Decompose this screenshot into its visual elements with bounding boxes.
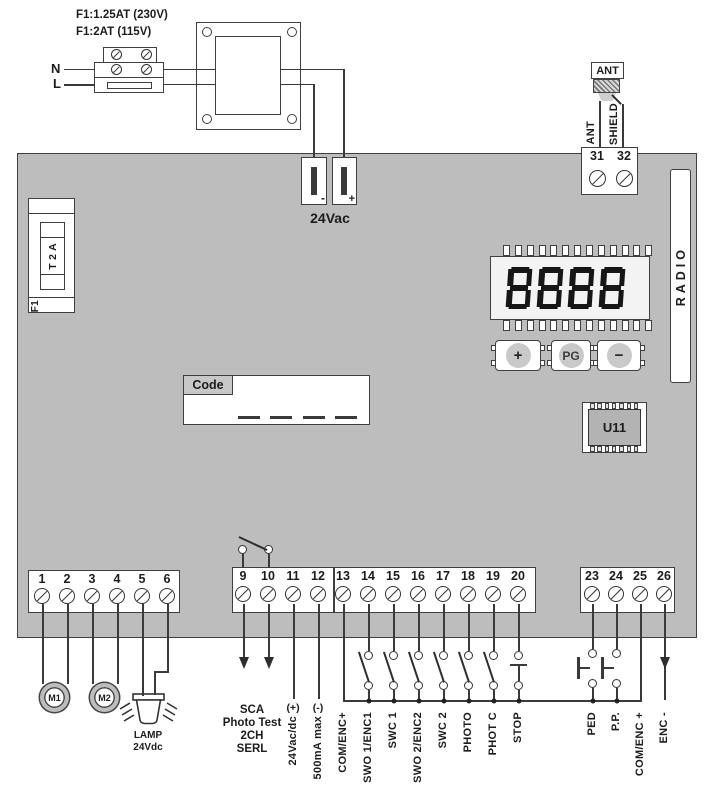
seven-segment-display	[490, 256, 650, 320]
terminal-number-19: 19	[486, 569, 500, 583]
mains-terminal-n	[94, 62, 164, 78]
wire	[142, 604, 144, 696]
button-contact	[612, 679, 621, 688]
button-contact	[588, 679, 597, 688]
fuse-id-label: F1	[29, 300, 43, 312]
relay-contact	[238, 545, 247, 554]
terminal-number-6: 6	[164, 572, 171, 586]
mains-screw	[141, 49, 152, 60]
wire	[640, 604, 642, 702]
wire	[493, 604, 495, 651]
junction-dot	[491, 699, 496, 704]
transformer-core	[215, 36, 281, 115]
terminal-screw-32	[616, 170, 633, 187]
display-pin	[622, 320, 629, 331]
display-pin	[574, 320, 581, 331]
display-pin	[610, 245, 617, 256]
wire	[163, 69, 216, 71]
fuse-rating-label: T 2 A	[46, 243, 60, 270]
wiring-diagram: F1:1.25AT (230V) F1:2AT (115V) N L - + 2…	[0, 0, 719, 800]
segment	[619, 269, 626, 286]
chip-pin	[590, 446, 595, 452]
wire	[67, 604, 69, 684]
mains-screw	[111, 64, 122, 75]
terminal-screw-31	[589, 170, 606, 187]
terminal-screw-18	[460, 586, 476, 602]
neutral-label: N	[51, 61, 60, 76]
switch-contact	[439, 651, 448, 660]
terminal-number-20: 20	[511, 569, 525, 583]
display-pin	[574, 245, 581, 256]
aux-plus-label: (+)	[281, 702, 305, 714]
sca-output-label: SCA Photo Test 2CH SERL	[212, 704, 292, 756]
segment	[526, 269, 533, 286]
chip-pin	[612, 446, 617, 452]
wire	[604, 667, 615, 670]
terminal-screw-2	[59, 588, 75, 604]
terminal-number-9: 9	[240, 569, 247, 583]
transformer-mount-hole	[202, 114, 212, 124]
display-pin	[645, 320, 652, 331]
24vac-blade-minus	[311, 167, 317, 195]
terminal-block-motor	[28, 570, 180, 613]
terminal-screw-3	[84, 588, 100, 604]
segment	[506, 290, 513, 307]
display-pin	[645, 245, 652, 256]
transformer-mount-hole	[202, 27, 212, 37]
button-tab	[640, 360, 645, 366]
button-tab	[540, 345, 545, 351]
button-tab	[593, 345, 598, 351]
display-pin	[622, 245, 629, 256]
wire	[243, 604, 245, 657]
wire	[592, 604, 594, 649]
terminal-label-19: PHOT C	[486, 712, 500, 755]
junction-dot	[441, 699, 446, 704]
segment	[507, 269, 514, 286]
terminal-screw-26	[656, 586, 672, 602]
display-pin	[598, 245, 605, 256]
24vac-blade-plus	[341, 167, 347, 195]
chip-pin	[634, 446, 639, 452]
wire	[268, 554, 270, 568]
terminal-screw-19	[485, 586, 501, 602]
flashing-lamp-icon	[112, 688, 188, 732]
terminal-label-13: COM/ENC+	[336, 712, 350, 773]
fuse-cap-line	[40, 237, 65, 238]
segment	[541, 285, 559, 291]
fuse-rating-230-label: F1:1.25AT (230V)	[76, 9, 168, 21]
segment	[537, 290, 544, 307]
display-pin	[539, 320, 546, 331]
terminal-screw-11	[285, 586, 301, 602]
button-tab	[540, 360, 545, 366]
terminal-screw-10	[260, 586, 276, 602]
wire	[518, 604, 520, 651]
code-dash	[335, 416, 357, 419]
wire	[154, 671, 156, 695]
terminal-number-18: 18	[461, 569, 475, 583]
display-pin	[550, 320, 557, 331]
mains-fuse-slot	[107, 82, 152, 89]
arrow-down	[660, 657, 670, 669]
wire	[468, 604, 470, 651]
junction-dot	[366, 699, 371, 704]
terminal-label-20: STOP	[511, 712, 525, 743]
segment	[568, 290, 575, 307]
terminal-number-17: 17	[436, 569, 450, 583]
wire	[622, 104, 624, 148]
code-dash	[303, 416, 325, 419]
terminal-label-15: SWC 1	[386, 712, 400, 748]
aux-minus-label: (-)	[306, 702, 330, 714]
segment	[557, 269, 564, 286]
minus-button[interactable]: −	[597, 340, 641, 371]
terminal-screw-13	[335, 586, 351, 602]
junction-dot	[466, 699, 471, 704]
motor-1: M1	[40, 683, 69, 712]
antenna-wire-label: ANT	[584, 121, 598, 145]
display-pin	[586, 320, 593, 331]
arrow-down	[239, 657, 249, 669]
terminal-screw-5	[134, 588, 150, 604]
junction-dot	[516, 699, 521, 704]
button-tab	[491, 345, 496, 351]
segment	[588, 269, 595, 286]
display-digit	[537, 267, 564, 309]
aux-current-label: 500mA max	[311, 716, 325, 779]
chip-pin	[627, 446, 632, 452]
wire	[64, 84, 95, 86]
code-dash	[238, 416, 260, 419]
plus-button-cap: +	[506, 343, 531, 368]
wire	[280, 84, 314, 86]
wire	[518, 665, 521, 681]
junction-dot	[391, 699, 396, 704]
minus-mark: -	[321, 191, 325, 205]
display-pin	[503, 320, 510, 331]
switch-contact	[364, 651, 373, 660]
terminal-number-10: 10	[261, 569, 275, 583]
wire	[580, 667, 591, 670]
wire	[664, 604, 666, 700]
antenna-connector-label: ANT	[591, 62, 624, 79]
terminal-number-12: 12	[311, 569, 325, 583]
terminal-number-23: 23	[585, 569, 599, 583]
terminal-number-32: 32	[617, 149, 631, 163]
display-pin	[562, 245, 569, 256]
terminal-number-13: 13	[336, 569, 350, 583]
board-fuse: T 2 A	[40, 222, 65, 290]
24vac-label: 24Vac	[302, 210, 358, 226]
display-pin	[633, 245, 640, 256]
display-pin	[515, 320, 522, 331]
display-pin	[550, 245, 557, 256]
junction-dot	[590, 699, 595, 704]
terminal-number-4: 4	[114, 572, 121, 586]
terminal-label-23: PED	[585, 712, 599, 736]
terminal-number-26: 26	[657, 569, 671, 583]
fuse-rating-115-label: F1:2AT (115V)	[76, 26, 151, 38]
terminal-screw-16	[410, 586, 426, 602]
stop-contact	[514, 651, 523, 660]
minus-button-cap: −	[607, 343, 632, 368]
terminal-screw-4	[109, 588, 125, 604]
sca-line: Photo Test	[212, 717, 292, 730]
terminal-screw-23	[584, 586, 600, 602]
terminal-screw-24	[608, 586, 624, 602]
terminal-number-24: 24	[609, 569, 623, 583]
display-pin	[586, 245, 593, 256]
display-digit	[599, 267, 626, 309]
sca-line: SCA	[212, 704, 292, 717]
code-dash	[270, 416, 292, 419]
segment	[569, 269, 576, 286]
button-tab	[491, 360, 496, 366]
radio-label: RADIO	[674, 246, 688, 306]
switch-contact	[464, 651, 473, 660]
terminal-label-17: SWC 2	[436, 712, 450, 748]
display-pin	[527, 245, 534, 256]
wire	[64, 69, 95, 71]
switch-contact	[414, 651, 423, 660]
button-contact	[588, 649, 597, 658]
button-tab	[547, 360, 552, 366]
program-button[interactable]: PG	[551, 340, 591, 371]
terminal-screw-9	[235, 586, 251, 602]
wire	[368, 604, 370, 651]
terminal-screw-14	[360, 586, 376, 602]
wire	[163, 84, 216, 86]
mains-screw	[111, 49, 122, 60]
terminal-label-16: SWO 2/ENC2	[411, 712, 425, 783]
display-digit	[506, 267, 533, 309]
program-button-cap: PG	[559, 343, 584, 368]
wire	[599, 101, 601, 148]
terminal-screw-17	[435, 586, 451, 602]
terminal-screw-25	[632, 586, 648, 602]
wire	[418, 604, 420, 651]
terminal-number-31: 31	[590, 149, 604, 163]
display-digit	[568, 267, 595, 309]
stop-contact	[514, 681, 523, 690]
terminal-screw-6	[159, 588, 175, 604]
terminal-number-15: 15	[386, 569, 400, 583]
sca-line: 2CH	[212, 730, 292, 743]
transformer-mount-hole	[287, 114, 297, 124]
segment	[538, 269, 545, 286]
junction-dot	[416, 699, 421, 704]
terminal-number-3: 3	[89, 572, 96, 586]
display-pin	[515, 245, 522, 256]
wire	[313, 84, 315, 159]
button-tab	[593, 360, 598, 366]
sca-line: SERL	[212, 743, 292, 756]
fuse-holder-divider	[28, 297, 75, 298]
wire	[293, 604, 295, 699]
junction-dot	[614, 699, 619, 704]
wire	[393, 604, 395, 651]
display-pin	[598, 320, 605, 331]
plus-mark: +	[349, 193, 355, 205]
terminal-number-25: 25	[633, 569, 647, 583]
terminal-number-1: 1	[39, 572, 46, 586]
terminal-label-14: SWO 1/ENC1	[361, 712, 375, 783]
radio-module-slot: RADIO	[670, 169, 691, 383]
button-tab	[547, 345, 552, 351]
fuse-cap-line	[40, 274, 65, 275]
transformer-mount-hole	[287, 27, 297, 37]
terminal-screw-1	[34, 588, 50, 604]
segment	[599, 290, 606, 307]
antenna-plug	[593, 79, 620, 93]
segment	[600, 269, 607, 286]
arrow-down	[264, 657, 274, 669]
wire	[167, 604, 169, 672]
wire	[443, 604, 445, 651]
display-pin	[527, 320, 534, 331]
code-label: Code	[183, 375, 233, 395]
aux-supply-label: 24Vac/dc	[286, 716, 300, 766]
wire	[318, 604, 320, 699]
display-pin	[633, 320, 640, 331]
terminal-label-24: P.P.	[609, 712, 623, 731]
terminal-number-11: 11	[286, 569, 299, 583]
wire	[280, 69, 344, 71]
display-pin	[539, 245, 546, 256]
terminal-screw-20	[510, 586, 526, 602]
button-tab	[640, 345, 645, 351]
switch-contact	[389, 651, 398, 660]
display-pin	[610, 320, 617, 331]
wire	[154, 671, 169, 673]
terminal-number-5: 5	[139, 572, 146, 586]
wire	[343, 604, 345, 702]
terminal-screw-15	[385, 586, 401, 602]
segment	[603, 285, 621, 291]
button-contact	[612, 649, 621, 658]
segment	[510, 285, 528, 291]
wire	[242, 554, 244, 568]
chip-pin	[619, 446, 624, 452]
terminal-number-2: 2	[64, 572, 71, 586]
terminal-screw-12	[310, 586, 326, 602]
switch-contact	[489, 651, 498, 660]
terminal-number-16: 16	[411, 569, 425, 583]
plus-button[interactable]: +	[495, 340, 541, 371]
wire	[117, 604, 119, 684]
display-pin	[503, 245, 510, 256]
fuse-holder-divider	[28, 213, 75, 214]
wire	[616, 604, 618, 649]
terminal-label-26: ENC -	[657, 712, 671, 743]
mains-screw	[141, 64, 152, 75]
terminal-label-18: PHOTO	[461, 712, 475, 752]
display-pin	[562, 320, 569, 331]
chip-pin	[597, 446, 602, 452]
wire	[343, 69, 345, 159]
line-label: L	[53, 76, 61, 91]
terminal-number-14: 14	[361, 569, 375, 583]
chip-pin	[605, 446, 610, 452]
wire	[92, 604, 94, 684]
chip-u11: U11	[588, 409, 641, 446]
shield-wire-label: SHIELD	[607, 103, 621, 145]
terminal-label-25: COM/ENC +	[633, 712, 647, 776]
wire	[42, 604, 44, 684]
segment	[572, 285, 590, 291]
lamp-voltage-label: 24Vdc	[118, 742, 178, 753]
wire	[268, 604, 270, 657]
